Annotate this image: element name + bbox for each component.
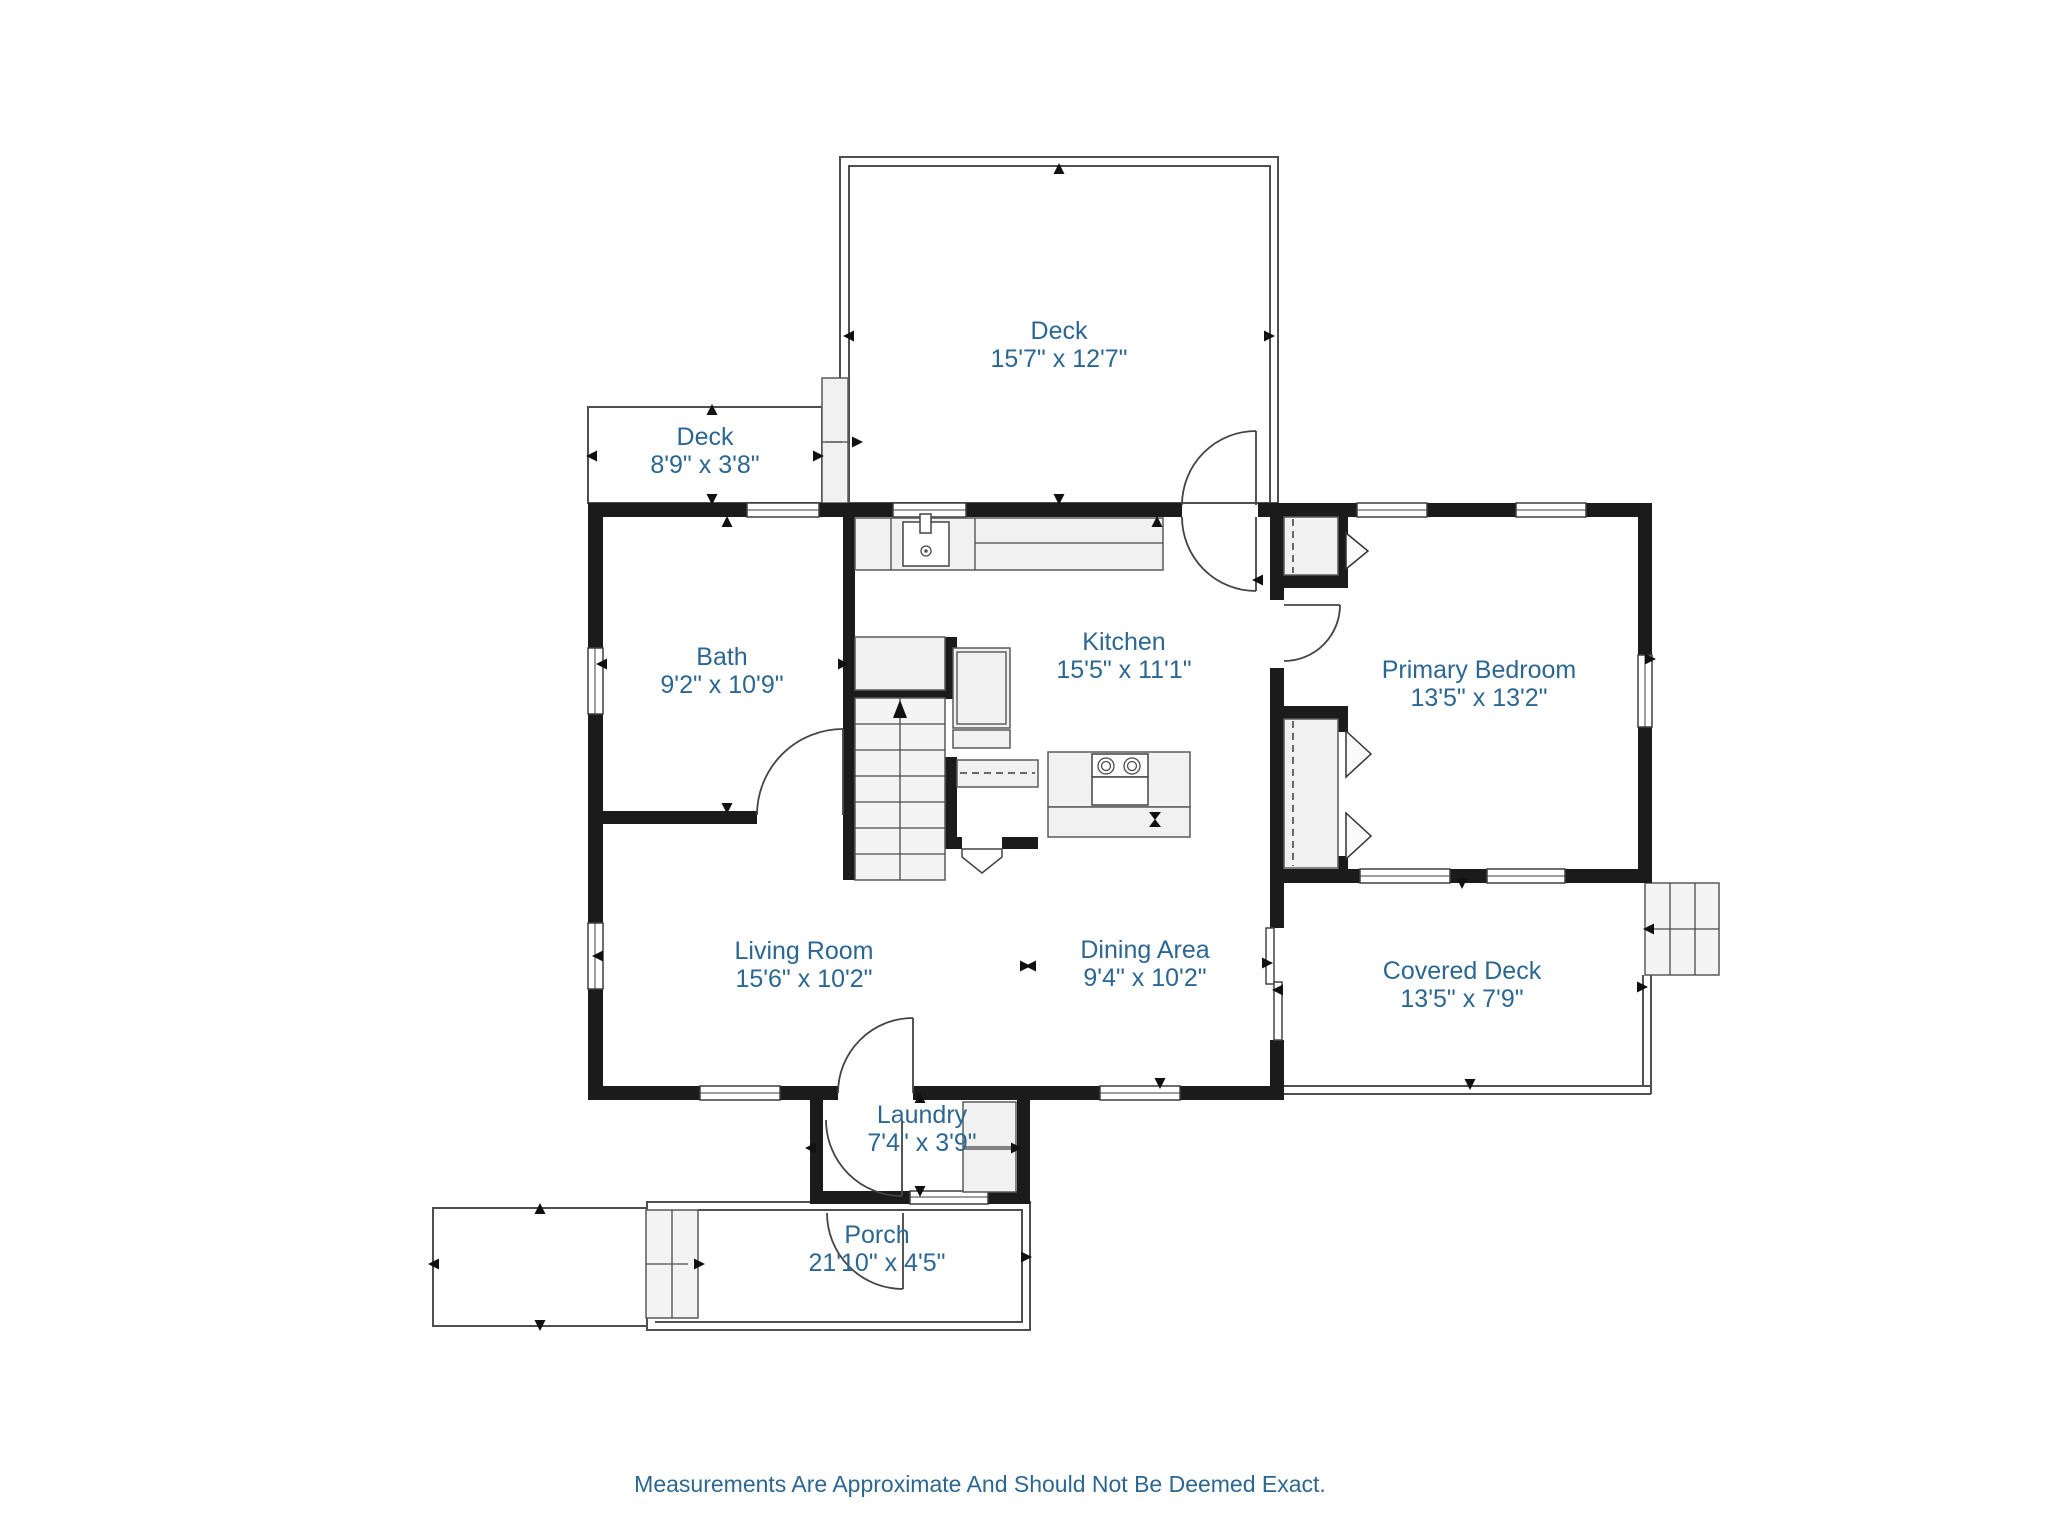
room-name: Deck — [1031, 317, 1088, 345]
room-label-kitchen: Kitchen 15'5" x 11'1" — [1056, 628, 1191, 684]
room-label-primary-bedroom: Primary Bedroom 13'5" x 13'2" — [1382, 656, 1577, 712]
room-dims: 13'5" x 13'2" — [1410, 684, 1547, 712]
main-staircase — [855, 637, 945, 880]
room-dims: 9'4" x 10'2" — [1083, 964, 1206, 992]
room-name: Primary Bedroom — [1382, 656, 1577, 684]
pantry-closet — [957, 760, 1038, 787]
bath-door — [757, 729, 843, 815]
disclaimer-text: Measurements Are Approximate And Should … — [634, 1471, 1326, 1497]
room-name: Kitchen — [1082, 628, 1165, 656]
room-dims: 21'10" x 4'5" — [808, 1249, 945, 1277]
front-door — [838, 1018, 913, 1093]
room-name: Bath — [696, 643, 747, 671]
room-name: Living Room — [735, 937, 874, 965]
room-name: Dining Area — [1080, 936, 1209, 964]
room-label-dining-area: Dining Area 9'4" x 10'2" — [1080, 936, 1209, 992]
room-label-laundry: Laundry 7'4" x 3'9" — [867, 1101, 976, 1157]
windows — [588, 503, 1652, 1204]
kitchen-counter — [855, 514, 1163, 570]
room-name: Deck — [677, 423, 734, 451]
porch-stairs — [646, 1210, 705, 1318]
room-dims: 15'7" x 12'7" — [990, 345, 1127, 373]
counter-stub — [953, 730, 1010, 748]
room-dims: 9'2" x 10'9" — [660, 671, 783, 699]
refrigerator — [953, 648, 1010, 748]
kitchen-island — [1048, 752, 1190, 837]
room-label-living-room: Living Room 15'6" x 10'2" — [735, 937, 874, 993]
room-name: Covered Deck — [1383, 957, 1542, 985]
room-dims: 15'6" x 10'2" — [735, 965, 872, 993]
covered-deck-stairs — [1643, 883, 1719, 975]
floor-plan-page: Deck 15'7" x 12'7" Deck 8'9" x 3'8" Bath… — [0, 0, 2048, 1536]
sink-faucet — [920, 514, 931, 533]
room-dims: 13'5" x 7'9" — [1400, 985, 1523, 1013]
bedroom-closet-upper — [1284, 517, 1368, 575]
room-label-covered-deck: Covered Deck 13'5" x 7'9" — [1383, 957, 1542, 1013]
porch-side-pad — [433, 1208, 647, 1326]
bedroom-closet-lower — [1284, 719, 1371, 868]
bedroom-door — [1284, 605, 1340, 661]
room-dims: 7'4" x 3'9" — [867, 1129, 976, 1157]
room-dims: 15'5" x 11'1" — [1056, 656, 1191, 684]
floor-plan-canvas: Deck 15'7" x 12'7" Deck 8'9" x 3'8" Bath… — [0, 0, 2048, 1536]
room-dims: 8'9" x 3'8" — [650, 451, 759, 479]
room-label-bath: Bath 9'2" x 10'9" — [660, 643, 783, 699]
room-name: Porch — [844, 1221, 909, 1249]
deck-connector-step — [822, 378, 848, 503]
room-name: Laundry — [877, 1101, 968, 1129]
cased-opening-marker — [962, 849, 1002, 873]
dining-sliding-door — [1266, 928, 1282, 1040]
stair-closet — [855, 637, 945, 690]
